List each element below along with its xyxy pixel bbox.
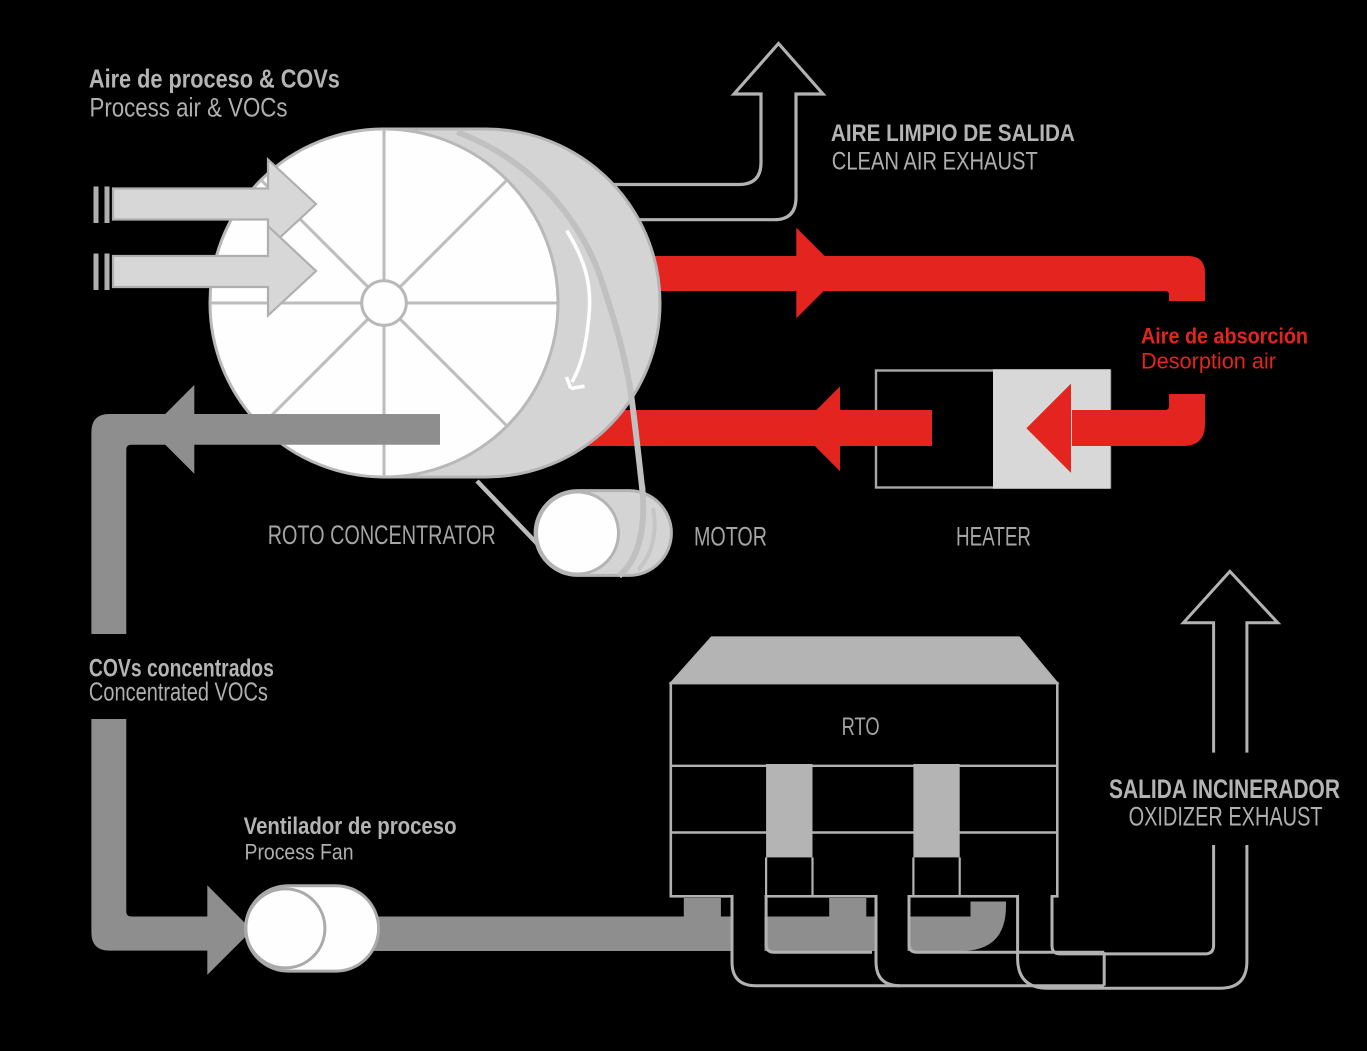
svg-text:Aire de absorción: Aire de absorción [1141,323,1308,348]
svg-text:Aire de proceso & COVs: Aire de proceso & COVs [89,64,340,94]
svg-text:AIRE LIMPIO DE SALIDA: AIRE LIMPIO DE SALIDA [831,120,1075,147]
svg-text:RTO: RTO [842,713,880,741]
svg-text:HEATER: HEATER [956,522,1031,552]
svg-text:Desorption air: Desorption air [1141,348,1276,373]
svg-text:Ventilador de proceso: Ventilador de proceso [244,813,457,840]
svg-text:Process air & VOCs: Process air & VOCs [90,92,288,122]
svg-text:Process Fan: Process Fan [245,840,354,865]
svg-text:OXIDIZER EXHAUST: OXIDIZER EXHAUST [1129,801,1323,831]
svg-text:CLEAN AIR EXHAUST: CLEAN AIR EXHAUST [832,147,1038,175]
svg-text:ROTO CONCENTRATOR: ROTO CONCENTRATOR [268,520,496,550]
svg-text:MOTOR: MOTOR [694,522,767,552]
svg-text:SALIDA INCINERADOR: SALIDA INCINERADOR [1109,774,1340,804]
svg-text:Concentrated VOCs: Concentrated VOCs [89,676,268,706]
